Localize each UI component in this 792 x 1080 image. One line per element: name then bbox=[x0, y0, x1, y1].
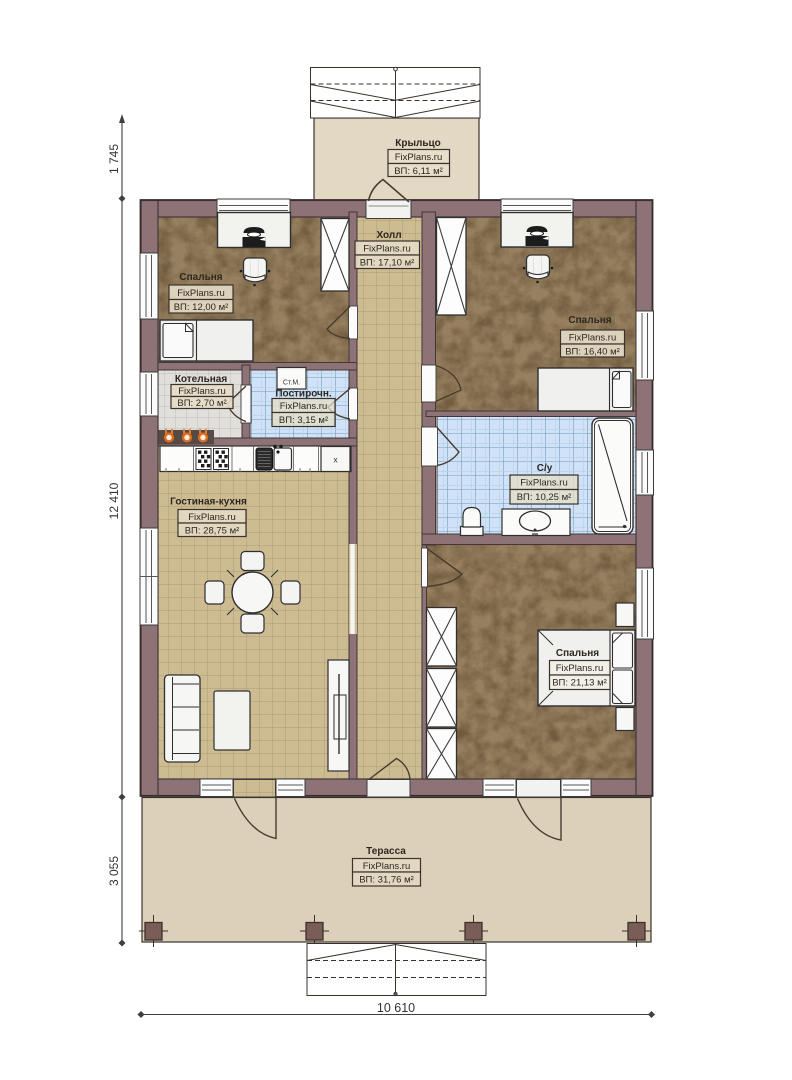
svg-text:FixPlans.ru: FixPlans.ru bbox=[363, 861, 411, 872]
svg-text:10 610: 10 610 bbox=[377, 1001, 415, 1015]
svg-text:ВП: 2,70 м²: ВП: 2,70 м² bbox=[177, 398, 226, 409]
svg-text:Ст.М.: Ст.М. bbox=[283, 380, 300, 387]
svg-text:ВП: 3,15 м²: ВП: 3,15 м² bbox=[279, 415, 328, 426]
svg-text:3 055: 3 055 bbox=[107, 856, 121, 886]
svg-text:FixPlans.ru: FixPlans.ru bbox=[556, 663, 604, 674]
svg-text:ВП: 31,76 м²: ВП: 31,76 м² bbox=[359, 875, 414, 886]
svg-text:12 410: 12 410 bbox=[107, 482, 121, 519]
svg-text:FixPlans.ru: FixPlans.ru bbox=[520, 478, 568, 489]
svg-text:FixPlans.ru: FixPlans.ru bbox=[178, 386, 226, 397]
svg-text:FixPlans.ru: FixPlans.ru bbox=[363, 244, 411, 255]
svg-text:FixPlans.ru: FixPlans.ru bbox=[395, 152, 443, 163]
svg-text:FixPlans.ru: FixPlans.ru bbox=[280, 401, 328, 412]
svg-text:ВП: 12,00 м²: ВП: 12,00 м² bbox=[174, 302, 229, 313]
svg-text:Терасса: Терасса bbox=[366, 846, 406, 857]
svg-text:ВП: 28,75 м²: ВП: 28,75 м² bbox=[185, 526, 240, 537]
svg-text:С/у: С/у bbox=[537, 463, 553, 474]
svg-text:ВП: 6,11 м²: ВП: 6,11 м² bbox=[394, 166, 443, 177]
svg-text:FixPlans.ru: FixPlans.ru bbox=[569, 333, 617, 344]
svg-text:Постирочн.: Постирочн. bbox=[275, 389, 332, 400]
svg-text:Спальня: Спальня bbox=[568, 315, 611, 326]
svg-text:ВП: 10,25 м²: ВП: 10,25 м² bbox=[517, 492, 572, 503]
svg-text:ВП: 17,10 м²: ВП: 17,10 м² bbox=[360, 258, 415, 269]
svg-text:ВП: 21,13 м²: ВП: 21,13 м² bbox=[552, 678, 607, 689]
svg-text:Крыльцо: Крыльцо bbox=[395, 138, 441, 149]
svg-text:Гостиная-кухня: Гостиная-кухня bbox=[170, 497, 247, 508]
svg-text:ВП: 16,40 м²: ВП: 16,40 м² bbox=[565, 347, 620, 358]
svg-text:FixPlans.ru: FixPlans.ru bbox=[188, 512, 236, 523]
svg-text:Котельная: Котельная bbox=[175, 374, 228, 385]
svg-text:1 745: 1 745 bbox=[107, 144, 121, 174]
svg-text:Спальня: Спальня bbox=[179, 272, 222, 283]
svg-text:Холл: Холл bbox=[376, 230, 401, 241]
svg-text:Спальня: Спальня bbox=[556, 648, 599, 659]
svg-text:FixPlans.ru: FixPlans.ru bbox=[177, 288, 225, 299]
